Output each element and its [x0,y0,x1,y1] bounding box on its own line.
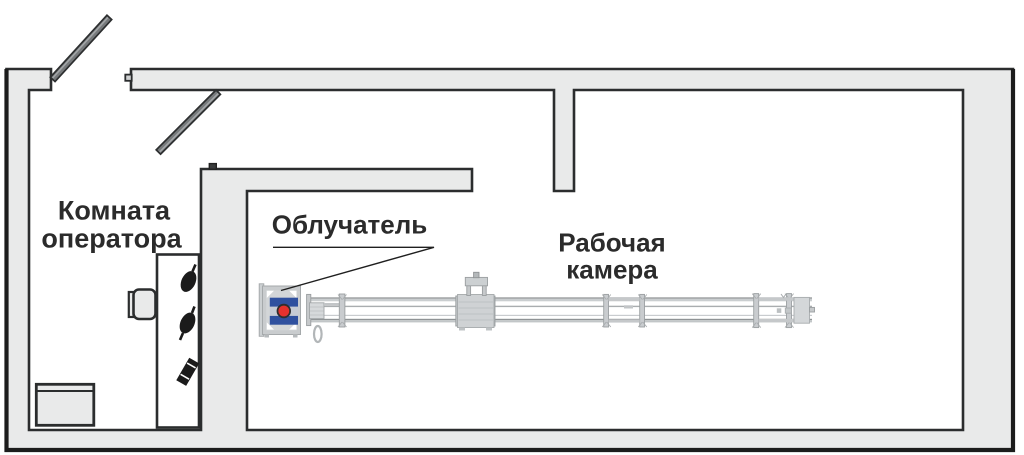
svg-text:Рабочая: Рабочая [558,228,665,258]
svg-text:камера: камера [566,255,658,285]
svg-text:Комната: Комната [58,196,171,226]
svg-text:Облучатель: Облучатель [272,210,428,240]
svg-text:оператора: оператора [41,224,182,254]
